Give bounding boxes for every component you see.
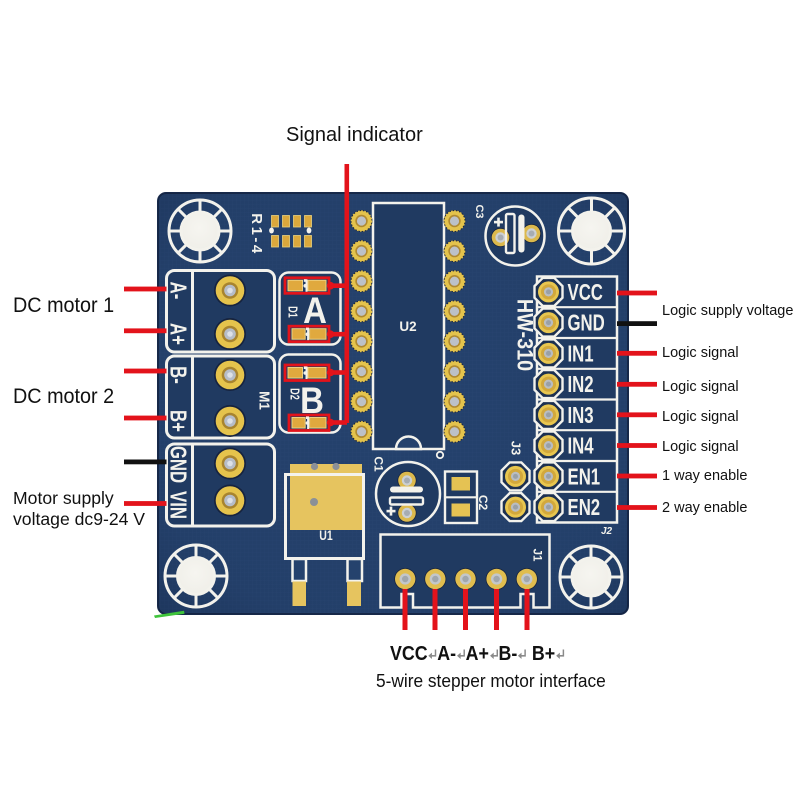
svg-text:U2: U2: [399, 319, 416, 334]
svg-text:GND: GND: [568, 311, 605, 336]
svg-text:B+: B+: [165, 410, 190, 432]
svg-text:J3: J3: [509, 441, 524, 455]
svg-text:GND: GND: [165, 446, 190, 483]
svg-text:HW-310: HW-310: [512, 299, 536, 371]
svg-text:R1-4: R1-4: [248, 213, 265, 256]
svg-text:D1: D1: [285, 306, 299, 318]
svg-text:IN2: IN2: [568, 373, 594, 398]
svg-text:U1: U1: [319, 528, 333, 544]
svg-text:D2: D2: [287, 388, 301, 400]
svg-text:C3: C3: [473, 204, 485, 218]
svg-text:J2: J2: [601, 526, 613, 537]
svg-text:EN2: EN2: [568, 496, 601, 521]
svg-text:A-: A-: [165, 282, 190, 300]
svg-text:VCC: VCC: [568, 280, 603, 305]
svg-text:IN1: IN1: [568, 342, 594, 367]
svg-text:M1: M1: [255, 391, 272, 410]
svg-text:B-: B-: [165, 366, 190, 384]
svg-text:C1: C1: [372, 456, 386, 472]
svg-text:A+: A+: [165, 323, 190, 345]
svg-text:VIN: VIN: [165, 491, 190, 519]
svg-text:C2: C2: [476, 495, 490, 511]
svg-text:IN3: IN3: [568, 403, 594, 428]
svg-text:J1: J1: [531, 549, 543, 562]
svg-text:A: A: [303, 290, 327, 331]
svg-text:IN4: IN4: [568, 434, 595, 459]
svg-text:EN1: EN1: [568, 465, 601, 490]
svg-text:B: B: [300, 380, 324, 421]
